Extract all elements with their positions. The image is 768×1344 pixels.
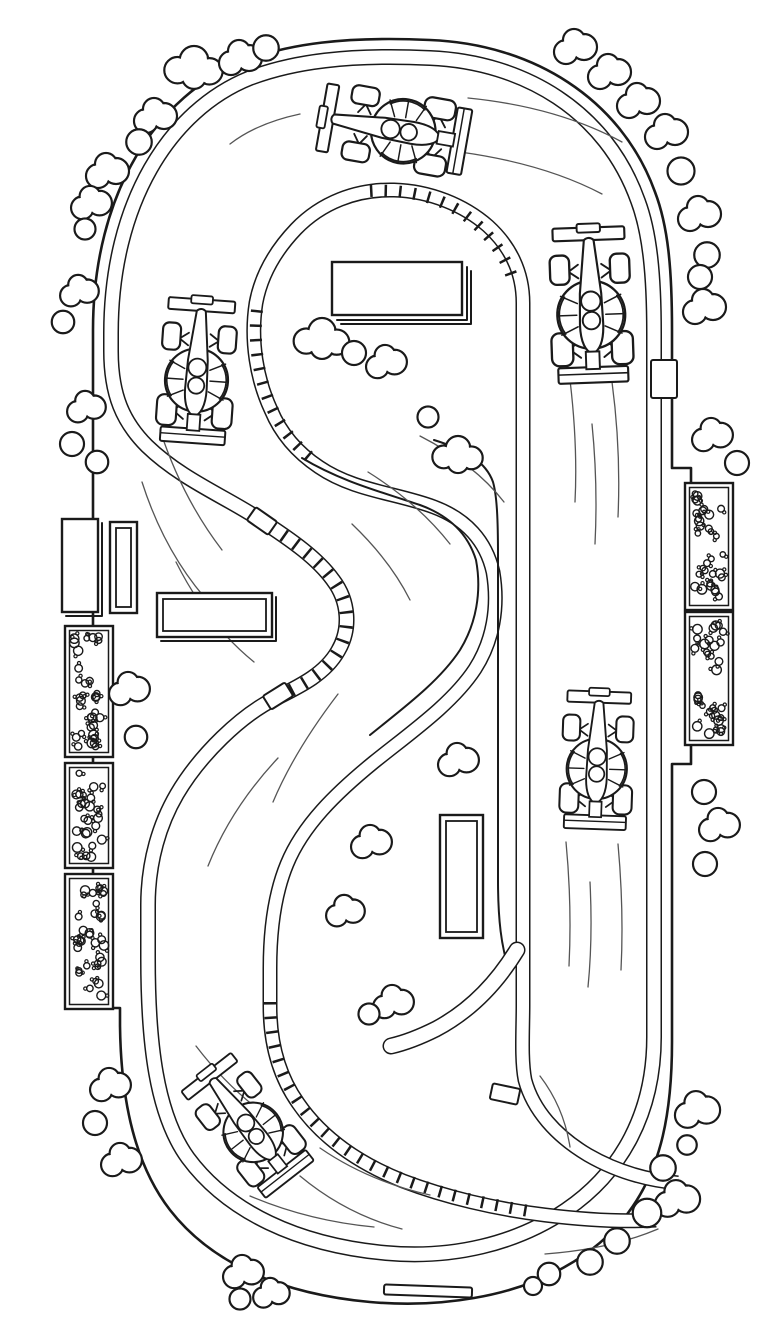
bush-icon bbox=[101, 1143, 142, 1176]
wheel bbox=[235, 1069, 264, 1100]
wheel bbox=[341, 140, 371, 163]
bush-icon bbox=[604, 1228, 630, 1254]
driver-helmet bbox=[188, 358, 207, 377]
bush-icon bbox=[650, 1155, 676, 1181]
bush-icon bbox=[83, 1111, 107, 1135]
bush-icon bbox=[588, 54, 631, 89]
bush-icon bbox=[75, 219, 96, 240]
wheel bbox=[350, 84, 380, 107]
left-building-outline bbox=[110, 522, 137, 613]
bush-icon bbox=[326, 895, 365, 927]
bush-icon bbox=[230, 1289, 251, 1310]
track-illustration bbox=[0, 0, 768, 1344]
bush-icon bbox=[675, 1091, 720, 1128]
top-building bbox=[332, 262, 471, 324]
bush-icon bbox=[60, 275, 99, 307]
bush-icon bbox=[668, 158, 695, 185]
car-right-upper bbox=[547, 222, 634, 384]
bush-icon bbox=[692, 780, 716, 804]
bush-icon bbox=[351, 825, 392, 858]
bush-icon bbox=[67, 391, 106, 423]
bush-icon bbox=[86, 153, 129, 188]
wheel bbox=[549, 255, 569, 285]
wheel bbox=[217, 326, 237, 354]
buildings bbox=[62, 262, 483, 938]
car-top bbox=[311, 78, 473, 180]
bush-icon bbox=[438, 743, 479, 776]
bush-icon bbox=[90, 1068, 131, 1101]
bush-icon bbox=[342, 341, 366, 365]
bush-icon bbox=[524, 1277, 542, 1295]
left-building-solid bbox=[62, 519, 102, 616]
bush-icon bbox=[677, 1135, 697, 1155]
bush-icon bbox=[126, 129, 152, 155]
driver-helmet bbox=[588, 748, 606, 766]
bush-icon bbox=[577, 1249, 603, 1275]
bush-icon bbox=[52, 311, 75, 334]
infield-building-small bbox=[440, 815, 483, 938]
bush-icon bbox=[693, 852, 717, 876]
bush-icon bbox=[699, 808, 740, 841]
wheel bbox=[616, 716, 634, 742]
car-left bbox=[154, 293, 240, 446]
wheel bbox=[610, 253, 630, 283]
bush-icon bbox=[366, 345, 407, 378]
race-track-coloring-page bbox=[0, 0, 768, 1344]
bush-icon bbox=[633, 1199, 662, 1228]
driver-helmet bbox=[581, 291, 601, 311]
bush-icon bbox=[688, 265, 712, 289]
bush-icon bbox=[678, 196, 721, 231]
bush-icon bbox=[164, 46, 222, 89]
bush-icon bbox=[645, 114, 688, 149]
bush-icon bbox=[125, 726, 148, 749]
wheel bbox=[162, 322, 182, 350]
bush-icon bbox=[253, 35, 279, 61]
infield-building-wide bbox=[157, 593, 276, 641]
bush-icon bbox=[134, 98, 177, 133]
bush-icon bbox=[418, 407, 439, 428]
lane-marker bbox=[651, 360, 677, 398]
lane-marker bbox=[490, 1083, 521, 1104]
bush-icon bbox=[60, 432, 84, 456]
bush-icon bbox=[86, 451, 109, 474]
bush-icon bbox=[725, 451, 749, 475]
bush-icon bbox=[694, 242, 720, 268]
race-cars bbox=[154, 78, 635, 1201]
wheel bbox=[562, 714, 580, 740]
bush-icon bbox=[617, 83, 660, 118]
bush-icon bbox=[359, 1004, 380, 1025]
bush-icon bbox=[109, 672, 150, 705]
bush-icon bbox=[683, 289, 726, 324]
bush-icon bbox=[692, 418, 733, 451]
bush-icon bbox=[71, 186, 112, 219]
right-grandstand bbox=[685, 483, 733, 745]
car-right-lower bbox=[559, 687, 636, 830]
bush-icon bbox=[554, 29, 597, 64]
left-grandstand bbox=[65, 626, 113, 1009]
lane-marker bbox=[384, 1284, 472, 1297]
